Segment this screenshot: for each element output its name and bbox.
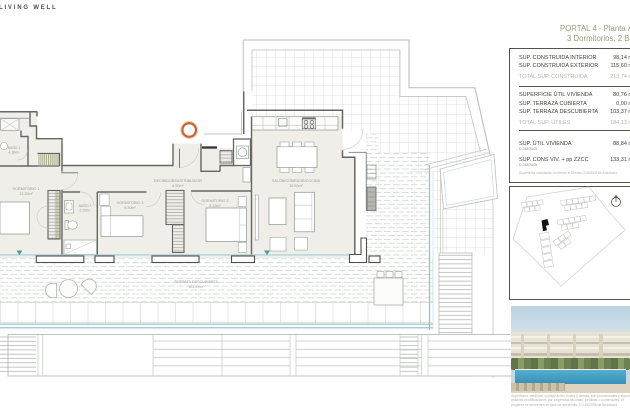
- svg-text:4.30m²: 4.30m²: [9, 151, 21, 155]
- svg-text:13.20m²: 13.20m²: [19, 192, 33, 196]
- svg-text:DORMITORIO 2: DORMITORIO 2: [202, 199, 229, 203]
- svg-text:6.33m²: 6.33m²: [80, 209, 92, 213]
- svg-text:TERRAZA DESCUBIERTA: TERRAZA DESCUBIERTA: [174, 280, 218, 284]
- svg-text:SALÓN/COMEDOR/COCINA: SALÓN/COMEDOR/COCINA: [272, 178, 321, 183]
- svg-text:BAÑO 1: BAÑO 1: [8, 145, 21, 150]
- svg-text:DORMITORIO 1: DORMITORIO 1: [13, 187, 40, 191]
- svg-text:30.80m²: 30.80m²: [289, 184, 303, 188]
- svg-text:103.37m²: 103.37m²: [188, 285, 204, 289]
- svg-text:8.22m²: 8.22m²: [209, 204, 221, 208]
- svg-text:8.50m²: 8.50m²: [172, 184, 184, 188]
- svg-text:BAÑO 2: BAÑO 2: [79, 203, 92, 208]
- svg-text:9.30m²: 9.30m²: [124, 206, 136, 210]
- svg-text:RECIBIDOR/DISTRIBUIDOR: RECIBIDOR/DISTRIBUIDOR: [154, 179, 202, 183]
- svg-text:DORMITORIO 3: DORMITORIO 3: [117, 201, 144, 205]
